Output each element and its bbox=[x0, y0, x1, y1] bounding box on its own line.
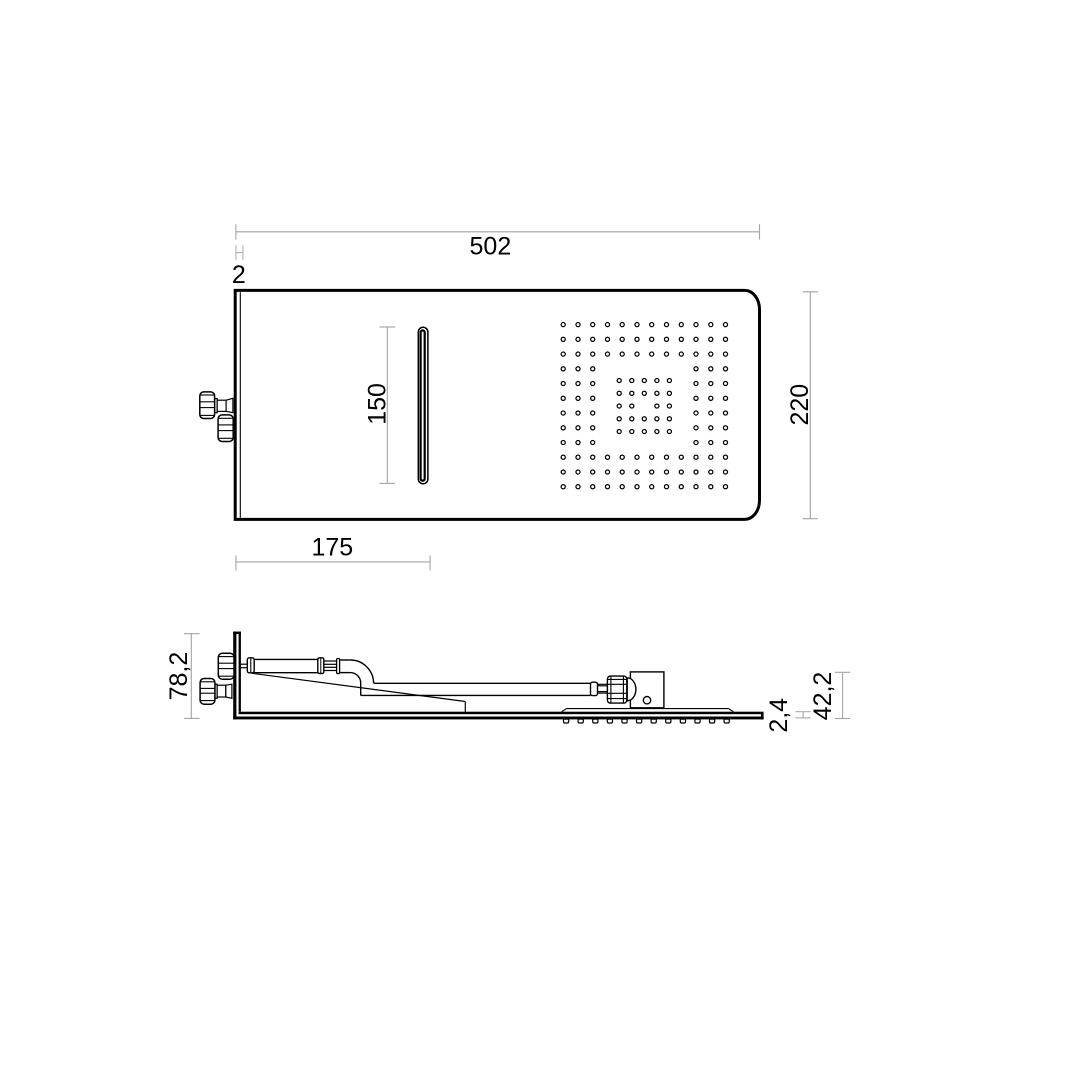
svg-text:502: 502 bbox=[470, 232, 512, 260]
svg-text:150: 150 bbox=[364, 383, 392, 425]
svg-text:175: 175 bbox=[311, 534, 353, 562]
svg-text:2: 2 bbox=[232, 261, 246, 289]
svg-text:220: 220 bbox=[786, 384, 814, 426]
svg-text:2,4: 2,4 bbox=[765, 698, 793, 733]
svg-text:42,2: 42,2 bbox=[809, 672, 837, 721]
svg-text:78,2: 78,2 bbox=[165, 652, 193, 701]
